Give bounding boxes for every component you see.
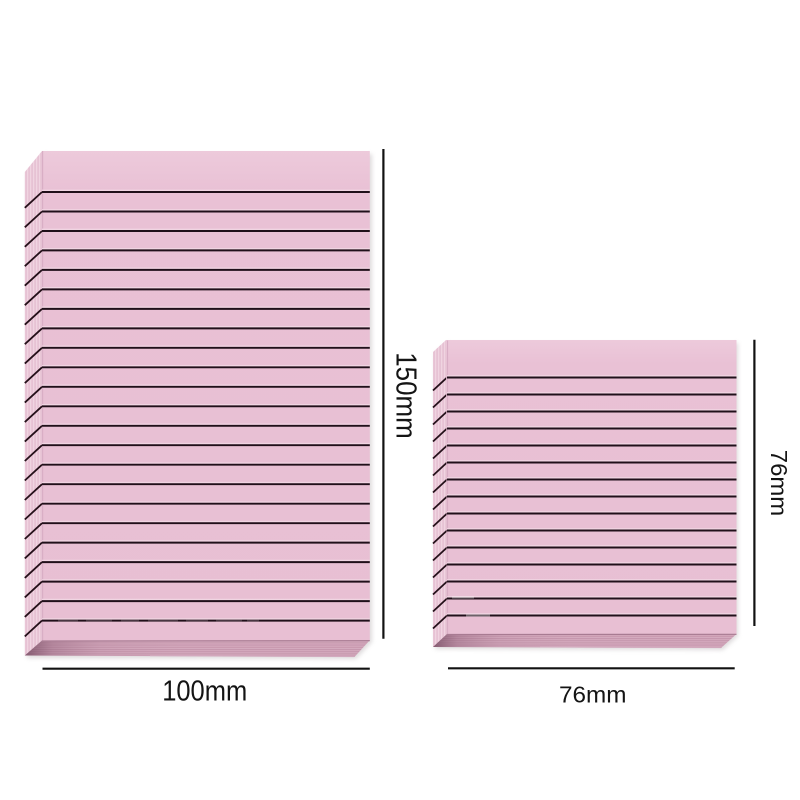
svg-text:100mm: 100mm	[162, 675, 247, 707]
svg-text:76mm: 76mm	[766, 450, 792, 516]
svg-text:76mm: 76mm	[559, 681, 627, 707]
svg-text:150mm: 150mm	[390, 352, 422, 439]
